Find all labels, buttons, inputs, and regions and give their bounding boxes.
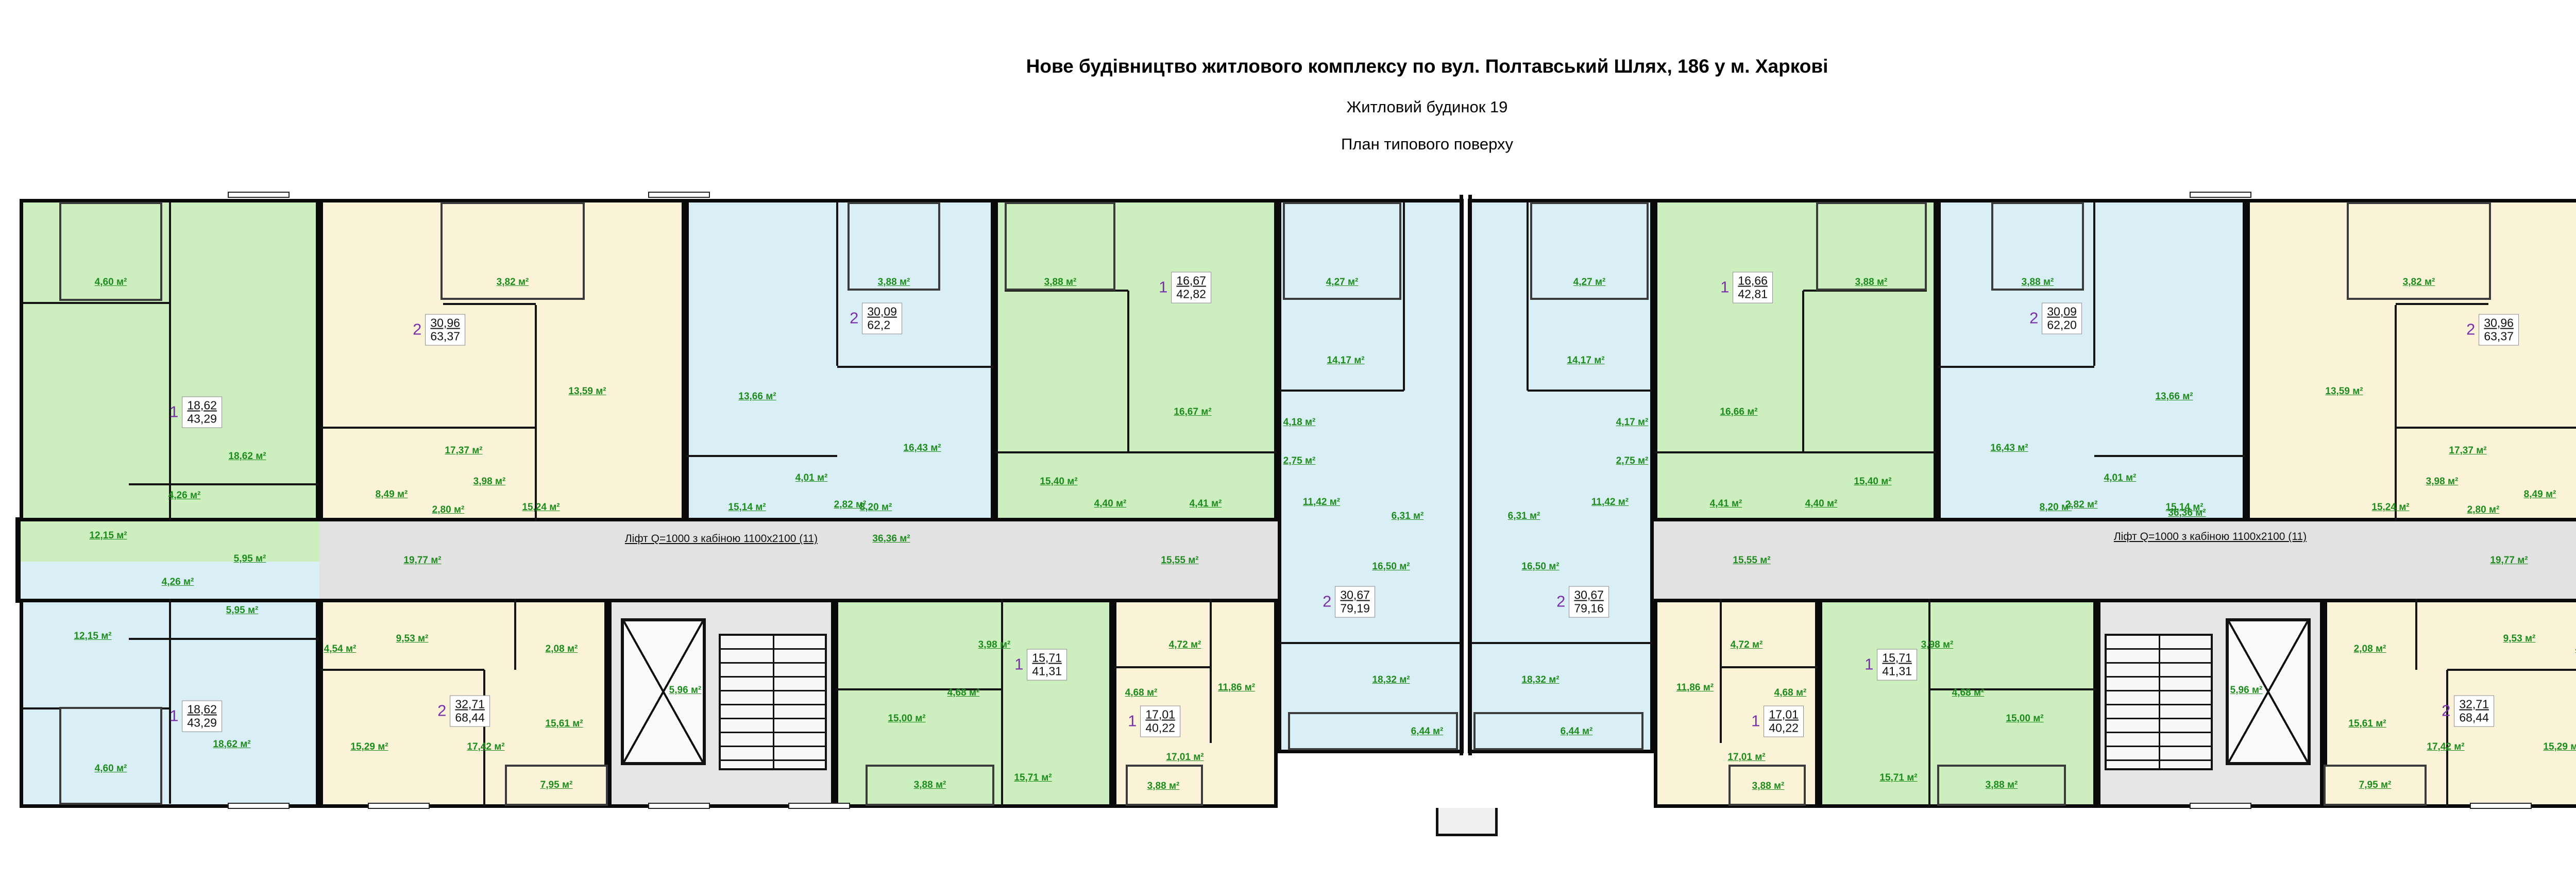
apartment-areas: 15,7141,31 [1877,649,1917,681]
room-area-label: 17,42 м² [467,741,504,753]
room-area-label: 9,53 м² [2503,633,2536,645]
interior-wall [1280,642,1462,644]
center-wall [1468,195,1472,755]
window [2470,803,2532,809]
interior-wall [1280,390,1404,392]
room-area-label: 8,49 м² [376,489,408,500]
room-area-label: 4,41 м² [1710,498,1742,510]
balcony [59,707,162,805]
interior-wall [1938,366,2094,368]
apartment-label: 230,9663,37 [413,314,465,346]
interior-wall [514,599,516,670]
balcony-area-label: 3,82 м² [2403,277,2435,288]
apartment-label: 230,6779,19 [1323,586,1375,618]
room-area-label: 2,08 м² [2354,644,2386,655]
interior-wall [686,455,837,457]
balcony-area-label: 3,88 м² [1147,781,1180,792]
room-area-label: 6,31 м² [1508,511,1540,522]
interior-wall [1114,666,1211,668]
interior-wall [535,305,537,520]
corridor-area-label: 15,55 м² [1161,555,1198,566]
apartment-label: 115,7141,31 [1865,649,1917,681]
window [228,803,290,809]
interior-wall [483,670,485,806]
interior-wall [1001,599,1003,806]
balcony-area-label: 7,95 м² [2359,780,2392,791]
room-area-label: 4,72 м² [1169,639,1201,651]
apartment-areas: 16,6742,82 [1171,272,1211,303]
window [648,192,710,198]
apartment-areas: 30,6779,19 [1335,586,1375,618]
corridor-area-label: 36,36 м² [872,533,910,545]
apartment-room-count: 2 [850,309,858,328]
window [368,803,430,809]
room-area-label: 15,29 м² [2543,741,2576,753]
interior-wall [1470,642,1652,644]
room-area-label: 15,24 м² [522,502,560,513]
interior-wall [1928,599,1930,806]
room-area-label: 4,17 м² [1616,417,1649,428]
room-area-label: 2,80 м² [432,504,465,516]
room-area-label: 9,53 м² [396,633,429,645]
room-area-label: 12,15 м² [74,631,111,642]
room-area-label: 17,01 м² [1166,752,1204,763]
interior-wall [1802,291,1804,452]
floor-plan-sheet: Нове будівництво житлового комплексу по … [0,0,2576,896]
room-area-label: 15,61 м² [545,718,583,730]
interior-wall [1403,202,1405,391]
apartment-label: 118,6243,29 [170,397,222,428]
staircase [719,634,827,770]
room-area-label: 18,62 м² [228,451,266,462]
interior-wall [837,366,993,368]
room-area-label: 13,66 м² [738,391,776,402]
room-area-label: 4,68 м² [1952,687,1985,699]
apartment-label: 230,0962,20 [2029,303,2082,334]
room-area-label: 15,29 м² [350,741,388,753]
room-area-label: 4,68 м² [947,687,980,699]
apartment-room-count: 2 [1556,593,1565,611]
interior-wall [1210,599,1212,743]
apartment-areas: 30,0962,20 [2042,303,2082,334]
room-area-label: 17,01 м² [1727,752,1765,763]
apartment-label: 117,0140,22 [1128,706,1180,737]
room-area-label: 16,66 м² [1720,407,1757,418]
apartment-areas: 17,0140,22 [1140,706,1180,737]
elevator-area-label: 5,96 м² [2230,685,2263,696]
apartment-areas: 32,7168,44 [2454,696,2494,727]
window [2190,192,2251,198]
room-area-label: 4,41 м² [1190,498,1222,510]
apartment-areas: 30,6779,16 [1569,586,1609,618]
interior-wall [1127,291,1129,452]
room-area-label: 18,32 м² [1521,674,1559,686]
room-area-label: 17,42 м² [2427,741,2464,753]
apartment-areas: 30,0962,2 [862,303,902,334]
balcony-area-label: 4,60 м² [95,277,127,288]
interior-wall [2447,669,2576,671]
interior-wall [1528,390,1652,392]
apartment-room-count: 1 [1128,712,1137,731]
room-area-label: 14,17 м² [1567,355,1604,366]
room-area-label: 3,98 м² [1921,639,1954,651]
apartment-areas: 32,7168,44 [450,696,490,727]
room-area-label: 16,50 м² [1372,561,1410,572]
corridor-area-label: 36,36 м² [2168,508,2206,519]
apartment-areas: 30,9663,37 [425,314,465,346]
apartment-label: 116,6642,81 [1720,272,1773,303]
apartment-areas: 15,7141,31 [1027,649,1067,681]
apartment-room-count: 1 [170,403,178,421]
apartment-label: 230,0962,2 [850,303,902,334]
room-area-label: 2,08 м² [546,644,578,655]
interior-wall [129,483,318,485]
apartment-room-count: 2 [2442,702,2450,720]
apartment-areas: 16,6642,81 [1733,272,1773,303]
room-area-label: 2,82 м² [2065,499,2098,511]
corridor-area-label: 15,55 м² [1733,555,1770,566]
interior-wall [1721,666,1818,668]
entrance-porch [1436,808,1498,836]
apartment-room-count: 1 [1720,278,1729,297]
apartment-areas: 18,6243,29 [182,397,222,428]
interior-wall [169,202,171,520]
balcony-area-label: 3,88 м² [914,780,946,791]
apartment-room-count: 1 [1159,278,1167,297]
apartment-room-count: 2 [2029,309,2038,328]
apartment-label: 232,7168,44 [437,696,490,727]
room-area-label: 18,32 м² [1372,674,1410,686]
balcony-area-label: 4,27 м² [1573,277,1606,288]
room-area-label: 2,75 м² [1616,455,1649,467]
floor-plan-canvas: 4,60 м²18,62 м²12,15 м²5,95 м²4,26 м²118… [0,0,2576,896]
room-area-label: 17,37 м² [2449,445,2486,457]
balcony [1473,712,1643,750]
interior-wall [995,451,1277,453]
room-area-label: 13,66 м² [2155,391,2193,402]
room-area-label: 16,67 м² [1174,407,1211,418]
balcony-area-label: 3,88 м² [1986,780,2018,791]
balcony-area-label: 3,88 м² [1044,277,1077,288]
room-area-label: 16,43 м² [903,443,941,454]
room-area-label: 18,62 м² [213,739,250,750]
interior-wall [320,427,536,429]
room-area-label: 4,40 м² [1094,498,1127,510]
interior-wall [2446,670,2448,806]
room-area-label: 4,26 м² [162,577,194,588]
room-area-label: 2,75 м² [1283,455,1316,467]
apartment-room-count: 2 [1323,593,1331,611]
room-area-label: 6,31 м² [1392,511,1424,522]
interior-wall [836,202,838,366]
apartment-room-count: 1 [1865,655,1873,674]
balcony-area-label: 3,88 м² [878,277,910,288]
elevator-area-label: 5,96 м² [669,685,702,696]
balcony-area-label: 6,44 м² [1411,726,1444,737]
room-area-label: 13,59 м² [2325,386,2363,397]
room-area-label: 4,68 м² [1774,687,1807,699]
lift-caption: Ліфт Q=1000 з кабіною 1100х2100 (11) [625,533,818,545]
end-wall [15,517,21,603]
room-area-label: 13,59 м² [568,386,606,397]
room-area-label: 15,00 м² [2006,713,2043,724]
apartment-label: 230,6779,16 [1556,586,1609,618]
window [228,192,290,198]
window [2190,803,2251,809]
room-area-label: 5,95 м² [234,553,266,565]
room-area-label: 4,01 м² [2104,472,2137,484]
interior-wall [2396,427,2576,429]
room-area-label: 15,61 м² [2348,718,2386,730]
interior-wall [2396,303,2488,305]
room-area-label: 14,17 м² [1327,355,1364,366]
apartment-label: 115,7141,31 [1014,649,1067,681]
apartment-label: 118,6243,29 [170,701,222,732]
room-area-label: 2,80 м² [2467,504,2500,516]
apartment-room-count: 1 [1751,712,1760,731]
corridor-end-strip [20,521,319,562]
interior-wall [2094,455,2245,457]
room-area-label: 15,40 м² [1854,476,1891,487]
room-area-label: 16,43 м² [1990,443,2028,454]
balcony-area-label: 3,88 м² [1752,781,1785,792]
room-area-label: 2,82 м² [834,499,867,511]
interior-wall [129,638,318,640]
room-area-label: 11,86 м² [1218,682,1255,694]
room-area-label: 12,15 м² [89,530,127,542]
balcony-area-label: 6,44 м² [1561,726,1593,737]
interior-wall [2395,305,2397,520]
room-area-label: 15,71 м² [1014,772,1052,784]
room-area-label: 8,49 м² [2524,489,2556,500]
balcony-area-label: 4,27 м² [1326,277,1359,288]
apartment-room-count: 1 [170,707,178,725]
room-area-label: 17,37 м² [445,445,482,457]
room-area-label: 15,14 м² [728,502,766,513]
apartment-apt-top-3-left [685,199,994,521]
room-area-label: 4,40 м² [1805,498,1838,510]
apartment-label: 116,6742,82 [1159,272,1211,303]
apartment-apt-top-3-right [1937,199,2246,521]
corridor-area-label: 19,77 м² [2490,555,2528,566]
window [788,803,850,809]
interior-wall [1720,599,1722,743]
lift-caption: Ліфт Q=1000 з кабіною 1100х2100 (11) [2114,531,2307,543]
apartment-areas: 18,6243,29 [182,701,222,732]
balcony-area-label: 3,88 м² [2022,277,2054,288]
apartment-room-count: 2 [413,320,421,339]
window [648,803,710,809]
room-area-label: 3,98 м² [2426,476,2459,487]
center-wall [1460,195,1463,755]
room-area-label: 11,86 м² [1676,682,1714,694]
room-area-label: 4,68 м² [1125,687,1158,699]
staircase [2105,634,2213,770]
room-area-label: 4,26 м² [168,490,201,501]
interior-wall [443,303,536,305]
room-area-label: 16,50 м² [1521,561,1559,572]
room-area-label: 3,98 м² [473,476,506,487]
corridor-area-label: 19,77 м² [403,555,441,566]
room-area-label: 5,95 м² [226,605,259,616]
interior-wall [2093,202,2095,366]
balcony-area-label: 7,95 м² [540,780,573,791]
apartment-room-count: 1 [1014,655,1023,674]
room-area-label: 15,24 м² [2371,502,2409,513]
apartment-label: 230,9663,37 [2466,314,2519,346]
room-area-label: 4,18 м² [1283,417,1316,428]
room-area-label: 3,98 м² [978,639,1011,651]
interior-wall [23,302,170,304]
apartment-areas: 30,9663,37 [2479,314,2519,346]
interior-wall [1655,451,1936,453]
apartment-room-count: 2 [2466,320,2475,339]
room-area-label: 4,01 м² [795,472,828,484]
interior-wall [1527,202,1529,391]
balcony-area-label: 4,60 м² [95,763,127,774]
balcony-area-label: 3,88 м² [1855,277,1888,288]
apartment-room-count: 2 [437,702,446,720]
room-area-label: 15,71 м² [1879,772,1917,784]
interior-wall [2415,599,2417,670]
interior-wall [320,669,484,671]
apartment-label: 232,7168,44 [2442,696,2494,727]
room-area-label: 15,40 м² [1040,476,1077,487]
room-area-label: 15,00 м² [888,713,925,724]
room-area-label: 11,42 м² [1591,497,1629,508]
apartment-areas: 17,0140,22 [1764,706,1804,737]
room-area-label: 11,42 м² [1303,497,1340,508]
room-area-label: 4,72 м² [1731,639,1763,651]
balcony-area-label: 3,82 м² [497,277,529,288]
room-area-label: 4,54 м² [324,644,357,655]
apartment-label: 117,0140,22 [1751,706,1804,737]
